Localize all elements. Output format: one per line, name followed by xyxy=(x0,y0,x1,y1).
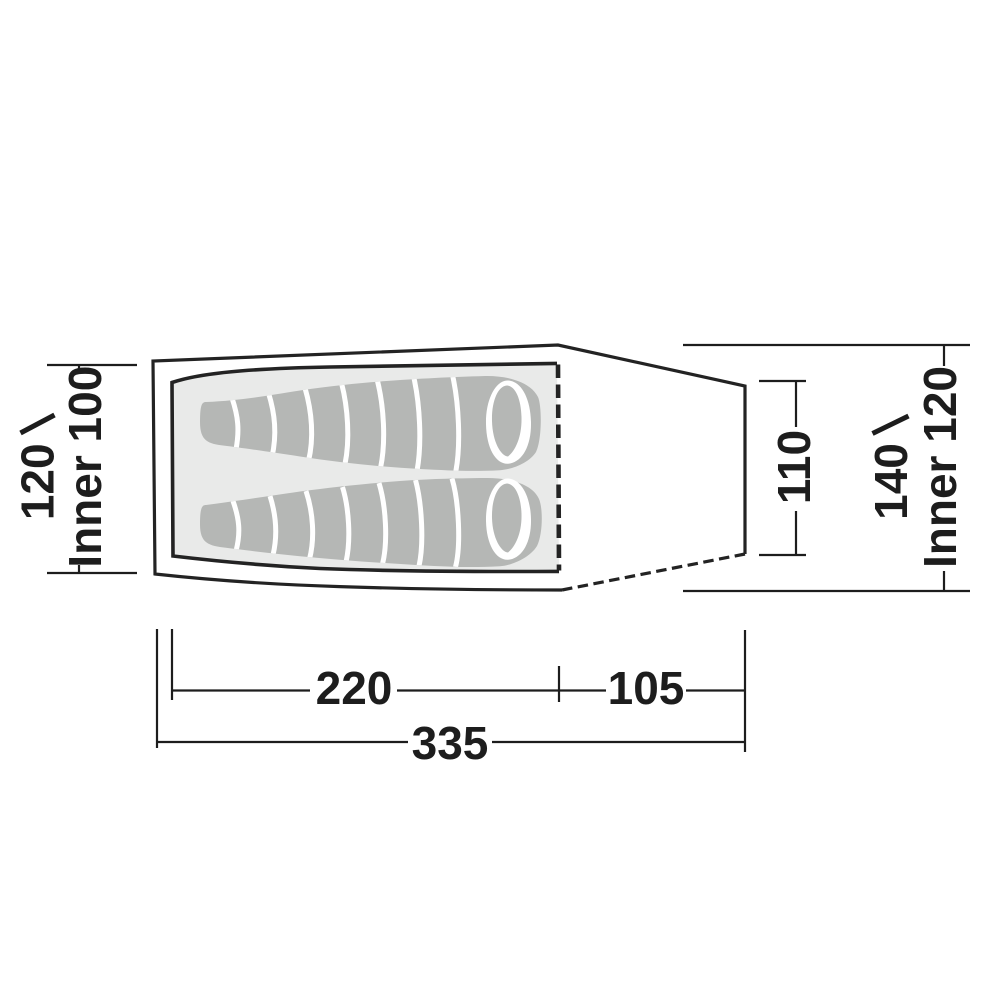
svg-text:Inner 100: Inner 100 xyxy=(59,366,111,568)
svg-text:120: 120 xyxy=(11,443,63,520)
svg-text:140: 140 xyxy=(865,443,917,520)
svg-text:220: 220 xyxy=(316,662,393,714)
svg-text:Inner 120: Inner 120 xyxy=(914,366,966,568)
svg-text:335: 335 xyxy=(412,717,489,769)
svg-text:105: 105 xyxy=(608,662,685,714)
svg-text:110: 110 xyxy=(768,430,820,504)
